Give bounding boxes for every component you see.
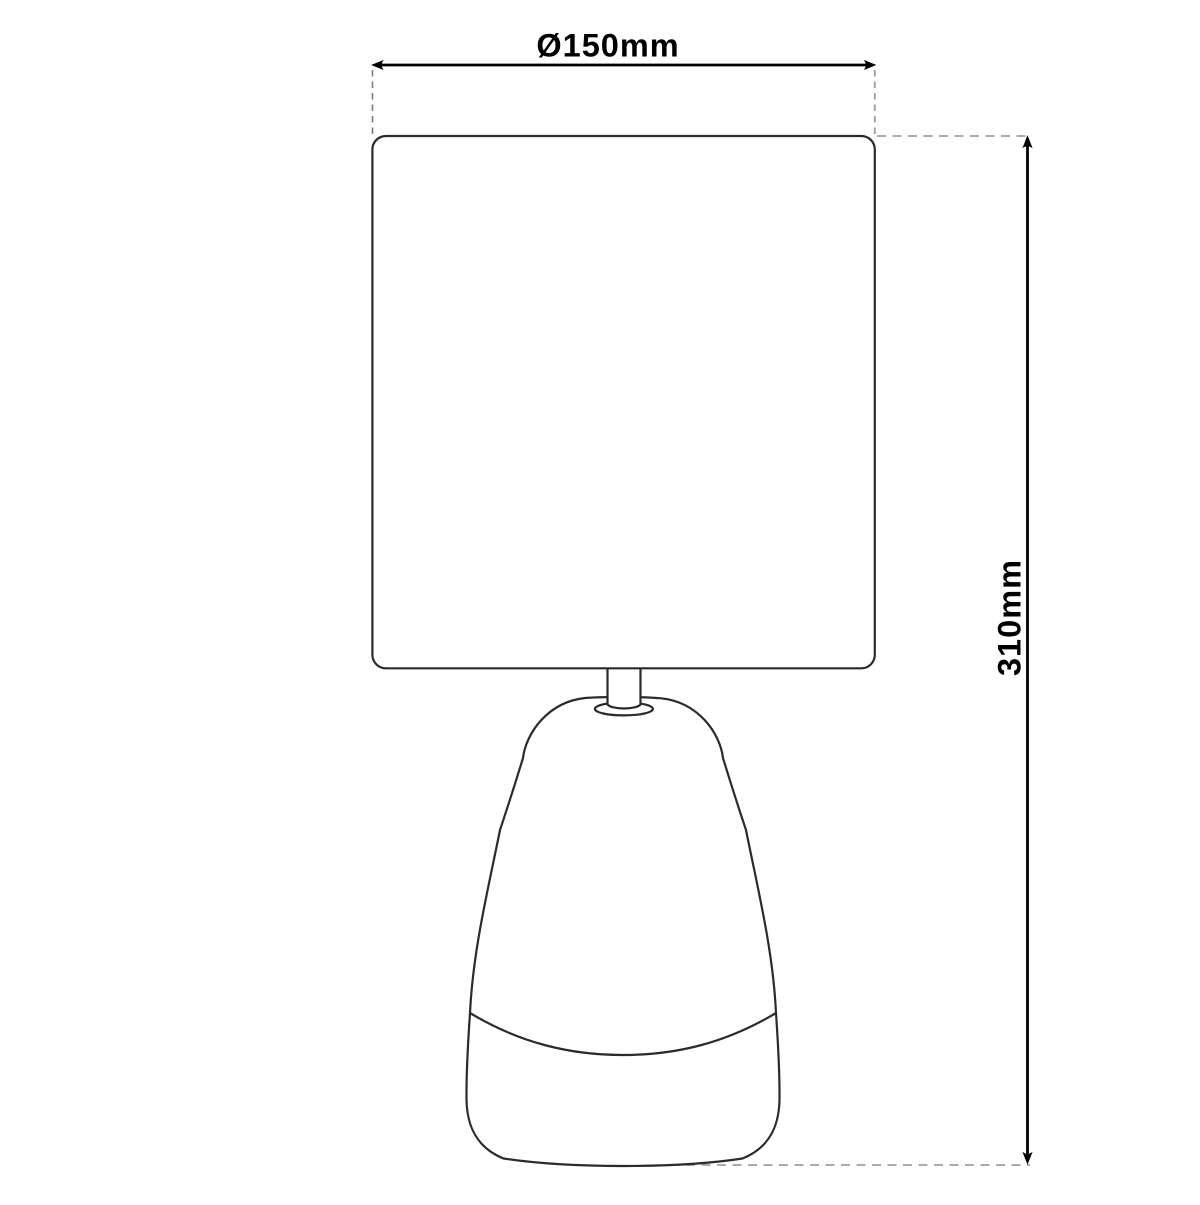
svg-text:310mm: 310mm [992,559,1028,676]
svg-text:Ø150mm: Ø150mm [536,28,679,64]
